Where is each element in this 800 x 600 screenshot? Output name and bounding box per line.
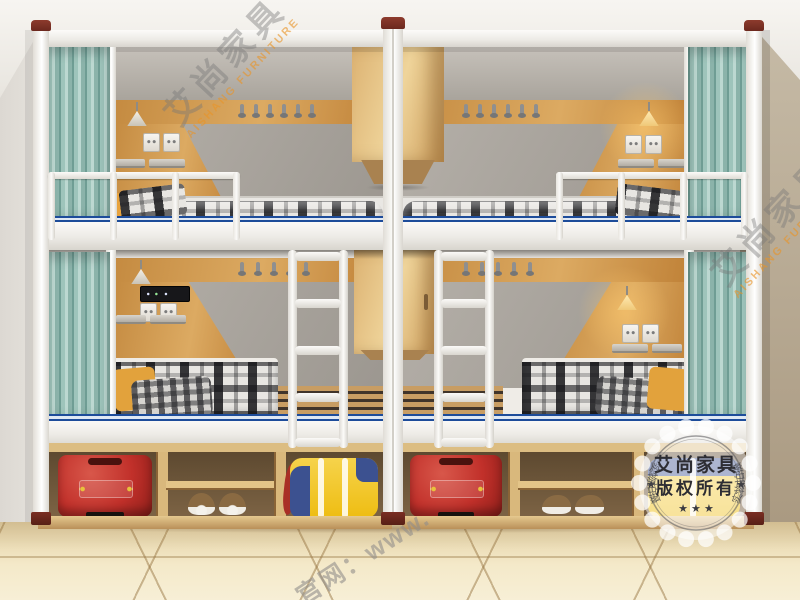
frame-post-center (383, 26, 403, 524)
post-cap-red (744, 20, 764, 31)
guard-rail-post (110, 172, 117, 240)
shoes-pair (542, 495, 604, 514)
copyright-stamp-svg: 艾尚家具 版权所有 ★ ★ ★ ★ ★ 实物拍摄 实物拍摄 (627, 414, 765, 552)
lamp-stem (140, 260, 142, 269)
storage-shelf (166, 481, 274, 490)
lamp-shade (130, 269, 152, 284)
guard-rail-post (233, 172, 240, 240)
coat-hook (310, 104, 314, 116)
wall-shelf (115, 159, 185, 168)
shoe (188, 493, 215, 515)
coat-hook (464, 104, 468, 116)
lamp-shade (126, 111, 148, 126)
suitcase-red (410, 455, 502, 517)
wall-lamp-lit (638, 102, 660, 126)
guard-rail-post (556, 172, 563, 240)
lamp-stem (648, 102, 650, 111)
power-socket (642, 324, 659, 343)
power-socket (645, 135, 662, 154)
copyright-stamp: 艾尚家具 版权所有 ★ ★ ★ ★ ★ 实物拍摄 实物拍摄 (627, 414, 765, 552)
ladder-rung (295, 299, 341, 308)
storage-shelf (518, 481, 632, 490)
curtain-lower-left (46, 252, 110, 428)
guard-rail-upper-left (48, 172, 240, 240)
coat-hook (240, 262, 244, 274)
coat-hook (492, 104, 496, 116)
coat-hook (254, 104, 258, 116)
shelf-board (150, 315, 186, 324)
power-sockets (622, 324, 659, 343)
power-socket (622, 324, 639, 343)
hook-row (464, 104, 538, 116)
coat-hook (256, 262, 260, 274)
coat-hook (520, 104, 524, 116)
post-seam (392, 26, 394, 524)
lamp-stem (136, 102, 138, 111)
power-socket (625, 135, 642, 154)
control-panel (140, 286, 190, 302)
wall-lamp-lit (616, 286, 638, 310)
stamp-line1: 艾尚家具 (654, 453, 738, 476)
ladder-rung (441, 346, 487, 355)
post-foot-red (381, 512, 405, 525)
wall-shadow-left (25, 30, 33, 522)
ladder-rung (441, 393, 487, 402)
shoe (219, 493, 246, 515)
coat-hook (296, 104, 300, 116)
hook-row (240, 104, 314, 116)
post-cap-red (31, 20, 51, 31)
under-bed-storage-left (38, 443, 392, 529)
wall-lamp (130, 260, 152, 284)
guard-rail-post (48, 172, 55, 240)
suitcase-handle (88, 458, 122, 465)
power-socket (163, 133, 180, 152)
lamp-shade (638, 111, 660, 126)
ladder-rung (295, 252, 341, 261)
guard-rail-bar (48, 172, 240, 179)
shoe (542, 495, 571, 514)
suitcase-panel (430, 480, 484, 498)
cabinet-handle (424, 294, 428, 310)
shoe (575, 495, 604, 514)
curtain-lower-right (688, 252, 752, 428)
ladder-left (288, 250, 348, 448)
power-socket (143, 133, 160, 152)
wall-shelf (612, 344, 682, 353)
coat-hook (478, 104, 482, 116)
frame-post-left (33, 28, 49, 524)
shelf-board (149, 159, 185, 168)
stamp-stars: ★ ★ ★ (678, 503, 714, 515)
ladder-rung (295, 393, 341, 402)
shelf-board (652, 344, 682, 353)
coat-hook (240, 104, 244, 116)
post-cap-red (381, 17, 405, 29)
suitcase-handle (439, 458, 473, 465)
guard-rail-post (618, 172, 625, 240)
power-sockets (625, 135, 662, 154)
wall-shelf (116, 315, 186, 324)
shoes-pair (188, 493, 246, 515)
bag-blue-corner (356, 458, 378, 482)
ladder-rung (441, 252, 487, 261)
shelf-board (612, 344, 648, 353)
bag-strap (342, 458, 348, 518)
floor-grout-line (0, 556, 800, 558)
dorm-bunk-bed-photo: 艾尚家具 AISHANG FURNITURE 艾尚家具 AISHANG FURN… (0, 0, 800, 600)
post-foot-red (31, 512, 51, 525)
shelf-board (116, 315, 146, 324)
coat-hook (506, 104, 510, 116)
coat-hook (512, 262, 516, 274)
guard-rail-upper-right (556, 172, 748, 240)
storage-base-board (38, 516, 392, 529)
lamp-shade (616, 295, 638, 310)
guard-rail-post (741, 172, 748, 240)
ladder-rung (295, 346, 341, 355)
shelf-board (618, 159, 654, 168)
guard-rail-post (680, 172, 687, 240)
wall-lamp (126, 102, 148, 126)
ladder-rung (441, 299, 487, 308)
suitcase-panel (79, 480, 134, 498)
coat-hook (528, 262, 532, 274)
bag-blue-end (290, 466, 310, 518)
power-sockets (143, 133, 180, 152)
shelf-board (115, 159, 145, 168)
stamp-line2: 版权所有 (656, 478, 736, 498)
ladder-rung (441, 438, 487, 447)
wall-shelf (618, 159, 688, 168)
coat-hook (534, 104, 538, 116)
bunk-back-upper-left (112, 47, 383, 100)
coat-hook (272, 262, 276, 274)
coat-hook (268, 104, 272, 116)
coat-hook (282, 104, 286, 116)
guard-rail-bar (556, 172, 748, 179)
ladder-right (434, 250, 494, 448)
coat-hook (496, 262, 500, 274)
ladder-rung (295, 438, 341, 447)
suitcase-red (58, 455, 152, 517)
guard-rail-post (172, 172, 179, 240)
duffel-bag (290, 458, 378, 518)
lamp-stem (626, 286, 628, 295)
bag-strap (318, 458, 324, 518)
